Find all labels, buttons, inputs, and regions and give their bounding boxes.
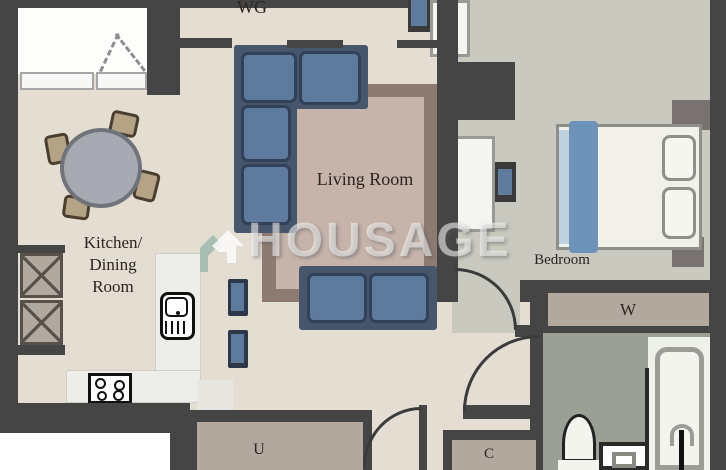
watermark: HOUSAGE <box>186 210 546 274</box>
burner <box>95 378 106 389</box>
sink-basin <box>165 297 188 317</box>
wall-stub-a <box>177 38 232 48</box>
sofa-cushion <box>241 105 291 162</box>
door-threshold <box>197 380 233 410</box>
bedroom-tv-unit <box>495 162 516 202</box>
sink-drain-dot <box>176 311 180 315</box>
loveseat-cushion <box>307 273 367 323</box>
room-label-wg: WG <box>228 0 276 18</box>
wall-shelf-housing-top <box>0 245 65 253</box>
tv-screen <box>411 0 427 26</box>
kitchen-label-line2: Dining <box>58 254 168 276</box>
watermark-text: HOUSAGE <box>248 212 512 270</box>
bar-chair-seat <box>231 334 244 363</box>
loveseat-cushion <box>369 273 429 323</box>
room-label-kitchen: Kitchen/ Dining Room <box>58 232 168 298</box>
entry-room <box>18 0 147 74</box>
wall-entry-right <box>147 0 180 95</box>
kitchen-label-line3: Room <box>58 276 168 298</box>
bed-pillow-top <box>662 135 696 181</box>
shower-basin <box>599 442 649 470</box>
kitchen-label-line1: Kitchen/ <box>58 232 168 254</box>
housage-logo-icon <box>190 216 246 274</box>
wall-right <box>710 0 726 290</box>
shower-drain <box>612 452 636 468</box>
sink-drainboard <box>165 321 189 334</box>
stove <box>88 373 132 404</box>
toilet-base <box>558 460 599 470</box>
bar-chair-bottom <box>228 330 248 368</box>
sofa-cushion <box>299 51 361 105</box>
floor-plan: WG Living Room Kitchen/ Dining Room Bedr… <box>0 0 726 470</box>
bed-blanket <box>569 121 598 253</box>
wall-top-left <box>0 0 150 8</box>
burner <box>97 391 107 401</box>
wall-outside-right <box>170 433 190 470</box>
sofa-cushion <box>241 52 297 103</box>
bed-pillow-bottom <box>662 187 696 239</box>
entry-sill-right <box>96 72 147 90</box>
room-label-living: Living Room <box>305 169 425 190</box>
dining-table <box>60 128 142 208</box>
wall-stub-b <box>287 40 343 48</box>
bedroom-tv-screen <box>498 169 512 195</box>
storage-shelf-top <box>20 253 63 298</box>
room-label-closet: C <box>478 446 500 463</box>
utility-room <box>197 422 363 470</box>
bathtub-drain-line <box>679 430 684 470</box>
wall-left <box>0 0 18 433</box>
kitchen-sink <box>160 292 195 340</box>
storage-shelf-bottom <box>20 300 63 345</box>
bar-chair-seat <box>231 283 244 311</box>
bar-chair-top <box>228 279 248 316</box>
wall-shelf-housing-bottom <box>0 345 65 355</box>
outside-area <box>0 433 170 470</box>
wall-bedroom-block <box>458 62 515 120</box>
tv-unit-top <box>408 0 430 32</box>
entry-sill-left <box>20 72 94 90</box>
burner <box>113 390 124 401</box>
wall-kitchen-bottom <box>0 403 190 433</box>
wall-bedroom-bottom <box>520 280 726 290</box>
room-label-wardrobe: W <box>615 300 641 320</box>
room-label-utility: U <box>248 441 270 459</box>
kitchen-counter-bottom <box>66 370 201 403</box>
